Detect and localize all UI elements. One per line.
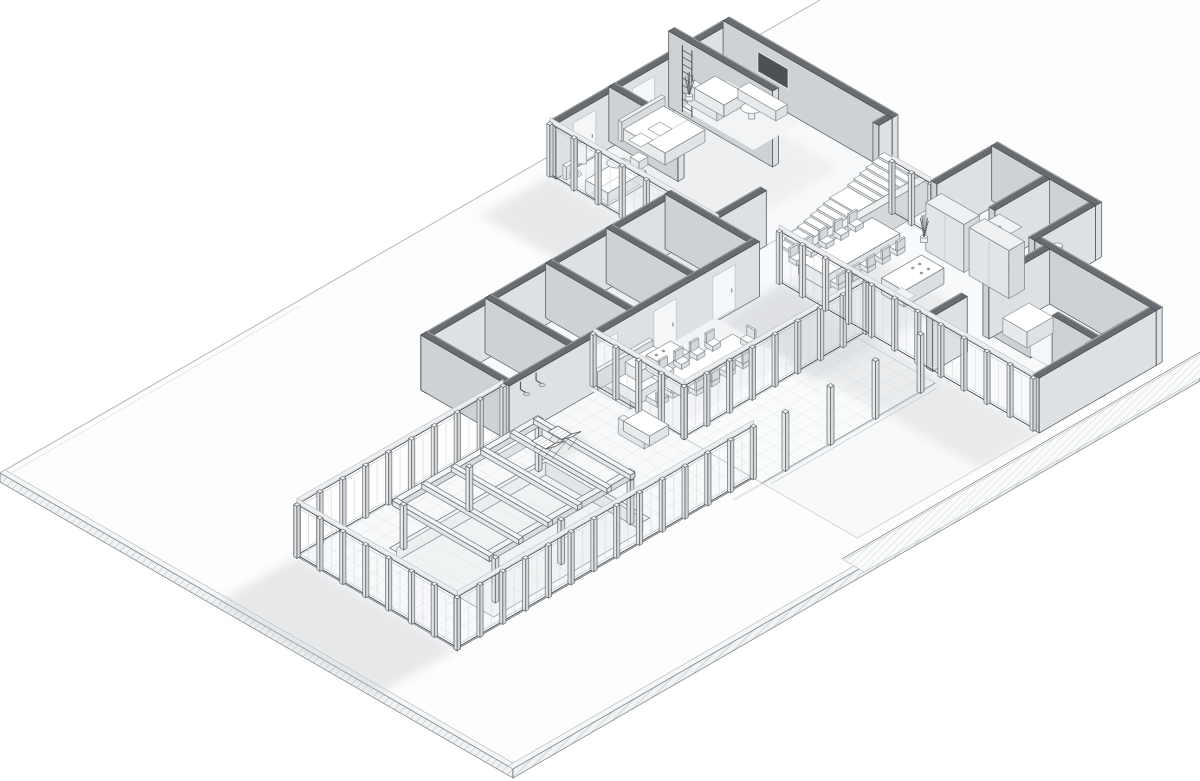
mullion-post-sw-face	[727, 360, 730, 414]
shower-head	[539, 383, 545, 386]
wall-sw-face	[983, 281, 989, 340]
mullion-post-se-face	[503, 571, 506, 625]
mullion-post-sw-face	[704, 373, 707, 427]
mullion-post-se-face	[622, 165, 625, 219]
mullion-post-se-face	[987, 351, 990, 405]
cooktop-burner	[911, 267, 914, 269]
wall-se-face	[1156, 307, 1162, 366]
mullion-post-sw-face	[817, 307, 820, 361]
mullion-post-sw-face	[363, 544, 366, 598]
terrace-post-sw-face	[782, 412, 786, 472]
mullion-post-se-face	[412, 438, 415, 492]
mullion-post-se-face	[752, 347, 755, 401]
cooktop-burner	[920, 272, 923, 274]
mullion-post-se-face	[640, 492, 643, 546]
mullion-post-sw-face	[500, 571, 503, 625]
mullion-post-sw-face	[749, 347, 752, 401]
mullion-post-se-face	[594, 518, 597, 572]
mullion-post-se-face	[662, 479, 665, 533]
mullion-post-sw-face	[889, 161, 892, 215]
pergola-post-se-face	[495, 557, 498, 603]
cooktop-burner	[918, 263, 921, 265]
terrace-post-sw-face	[827, 386, 831, 446]
mullion-post-sw-face	[568, 531, 571, 585]
mullion-post-sw-face	[613, 347, 616, 401]
mullion-post-se-face	[826, 258, 829, 312]
mullion-post-se-face	[598, 151, 601, 205]
mullion-post-sw-face	[386, 557, 389, 611]
mullion-post-sw-face	[408, 571, 411, 625]
tall-cabinet-se-face	[1009, 242, 1025, 299]
mullion-post-sw-face	[408, 438, 411, 492]
mullion-post-sw-face	[294, 505, 297, 559]
mullion-post-sw-face	[317, 518, 320, 572]
mullion-post-sw-face	[772, 334, 775, 388]
mullion-post-sw-face	[386, 452, 389, 506]
mullion-post-se-face	[297, 505, 300, 559]
chair-back-se-face	[755, 330, 757, 340]
pergola-post-sw-face	[400, 504, 404, 550]
mullion-post-se-face	[892, 161, 895, 215]
mullion-post-sw-face	[477, 584, 480, 638]
mullion-post-se-face	[708, 452, 711, 506]
mullion-post-sw-face	[795, 320, 798, 374]
mullion-post-sw-face	[846, 271, 849, 325]
mullion-post-sw-face	[619, 165, 622, 219]
mullion-post-sw-face	[431, 584, 434, 638]
pergola-post-se-face	[404, 504, 407, 550]
master-toilet-tank-sw-face	[563, 165, 567, 180]
mullion-post-sw-face	[961, 338, 964, 392]
mullion-post-sw-face	[863, 281, 866, 335]
mullion-post-se-face	[480, 399, 483, 453]
mullion-post-se-face	[574, 137, 577, 191]
pergola-post-se-face	[561, 519, 564, 565]
mullion-post-sw-face	[728, 439, 731, 493]
mullion-post-se-face	[912, 172, 915, 226]
mullion-post-se-face	[798, 320, 801, 374]
mullion-post-se-face	[480, 584, 483, 638]
mullion-post-sw-face	[431, 425, 434, 479]
mullion-post-se-face	[617, 505, 620, 559]
cooktop-burner	[655, 354, 658, 356]
cooktop-burner	[927, 268, 930, 270]
mullion-post-sw-face	[984, 351, 987, 405]
mullion-post-se-face	[343, 531, 346, 585]
mullion-post-se-face	[731, 439, 734, 493]
mullion-post-sw-face	[658, 373, 661, 427]
mullion-post-sw-face	[545, 544, 548, 598]
mullion-post-se-face	[779, 231, 782, 285]
mullion-post-sw-face	[454, 597, 457, 651]
mullion-post-se-face	[1033, 378, 1036, 432]
mullion-post-sw-face	[892, 298, 895, 352]
mullion-post-se-face	[320, 518, 323, 572]
mullion-post-se-face	[343, 478, 346, 532]
mullion-post-sw-face	[500, 386, 503, 440]
mullion-post-sw-face	[908, 172, 911, 226]
mullion-post-sw-face	[659, 479, 662, 533]
mullion-post-se-face	[1010, 364, 1013, 418]
shower-head	[523, 392, 529, 395]
mullion-post-se-face	[707, 373, 710, 427]
mullion-post-se-face	[593, 334, 596, 388]
terrace-post-sw-face	[917, 334, 921, 394]
mullion-post-sw-face	[938, 324, 941, 378]
mullion-post-sw-face	[595, 151, 598, 205]
mullion-post-se-face	[803, 244, 806, 298]
mullion-post-se-face	[548, 544, 551, 598]
mullion-post-sw-face	[869, 284, 872, 338]
terrace-post-se-face	[831, 386, 835, 446]
mullion-post-se-face	[639, 360, 642, 414]
headboard-sw-face	[618, 120, 622, 142]
mullion-post-se-face	[526, 558, 529, 612]
mullion-post-se-face	[550, 124, 553, 178]
mullion-post-se-face	[457, 597, 460, 651]
mullion-post-sw-face	[636, 492, 639, 546]
terrace-post-se-face	[786, 412, 789, 472]
stage	[0, 0, 1200, 781]
mullion-post-se-face	[434, 425, 437, 479]
mullion-post-se-face	[895, 298, 898, 352]
mullion-post-se-face	[571, 531, 574, 585]
mullion-post-sw-face	[776, 231, 779, 285]
axonometric-house-illustration	[0, 0, 1200, 781]
mullion-post-sw-face	[614, 505, 617, 559]
cooktop-burner	[662, 350, 665, 352]
terrace-post-sw-face	[872, 360, 875, 420]
mullion-post-se-face	[389, 557, 392, 611]
mullion-post-sw-face	[705, 452, 708, 506]
mullion-post-se-face	[457, 412, 460, 466]
mullion-post-se-face	[964, 338, 967, 392]
mullion-post-sw-face	[547, 124, 550, 178]
mullion-post-sw-face	[590, 334, 593, 388]
mullion-post-sw-face	[1030, 378, 1033, 432]
terrace-post-se-face	[921, 334, 924, 394]
mullion-post-sw-face	[523, 558, 526, 612]
mullion-post-se-face	[434, 584, 437, 638]
mullion-post-sw-face	[682, 466, 685, 520]
mullion-post-se-face	[684, 386, 687, 440]
mullion-post-se-face	[685, 466, 688, 520]
pergola-post-sw-face	[466, 466, 470, 512]
terrace-post-se-face	[876, 360, 880, 420]
mullion-post-se-face	[661, 373, 664, 427]
mullion-post-sw-face	[591, 518, 594, 572]
mullion-post-se-face	[730, 360, 733, 414]
mullion-post-se-face	[412, 571, 415, 625]
mullion-post-se-face	[366, 544, 369, 598]
mullion-post-sw-face	[477, 399, 480, 453]
mullion-post-sw-face	[636, 360, 639, 414]
pergola-post-se-face	[630, 479, 634, 525]
mullion-post-sw-face	[799, 244, 802, 298]
mullion-post-sw-face	[1007, 364, 1010, 418]
mullion-post-se-face	[753, 426, 756, 480]
mullion-post-se-face	[366, 465, 369, 519]
mullion-post-sw-face	[571, 137, 574, 191]
mullion-post-sw-face	[750, 426, 753, 480]
mullion-post-sw-face	[681, 386, 684, 440]
mullion-post-sw-face	[363, 465, 366, 519]
mullion-post-se-face	[941, 324, 944, 378]
mullion-post-se-face	[775, 334, 778, 388]
mullion-post-sw-face	[340, 531, 343, 585]
mullion-post-se-face	[389, 452, 392, 506]
mullion-post-se-face	[503, 386, 506, 440]
mullion-post-se-face	[872, 284, 875, 338]
mullion-post-sw-face	[822, 258, 825, 312]
mullion-post-se-face	[616, 347, 619, 401]
mullion-post-se-face	[821, 307, 824, 361]
mullion-post-sw-face	[840, 294, 843, 348]
wall-se-face	[1096, 202, 1102, 261]
pergola-post-se-face	[469, 466, 472, 512]
mullion-post-se-face	[849, 271, 852, 325]
mullion-post-sw-face	[454, 412, 457, 466]
